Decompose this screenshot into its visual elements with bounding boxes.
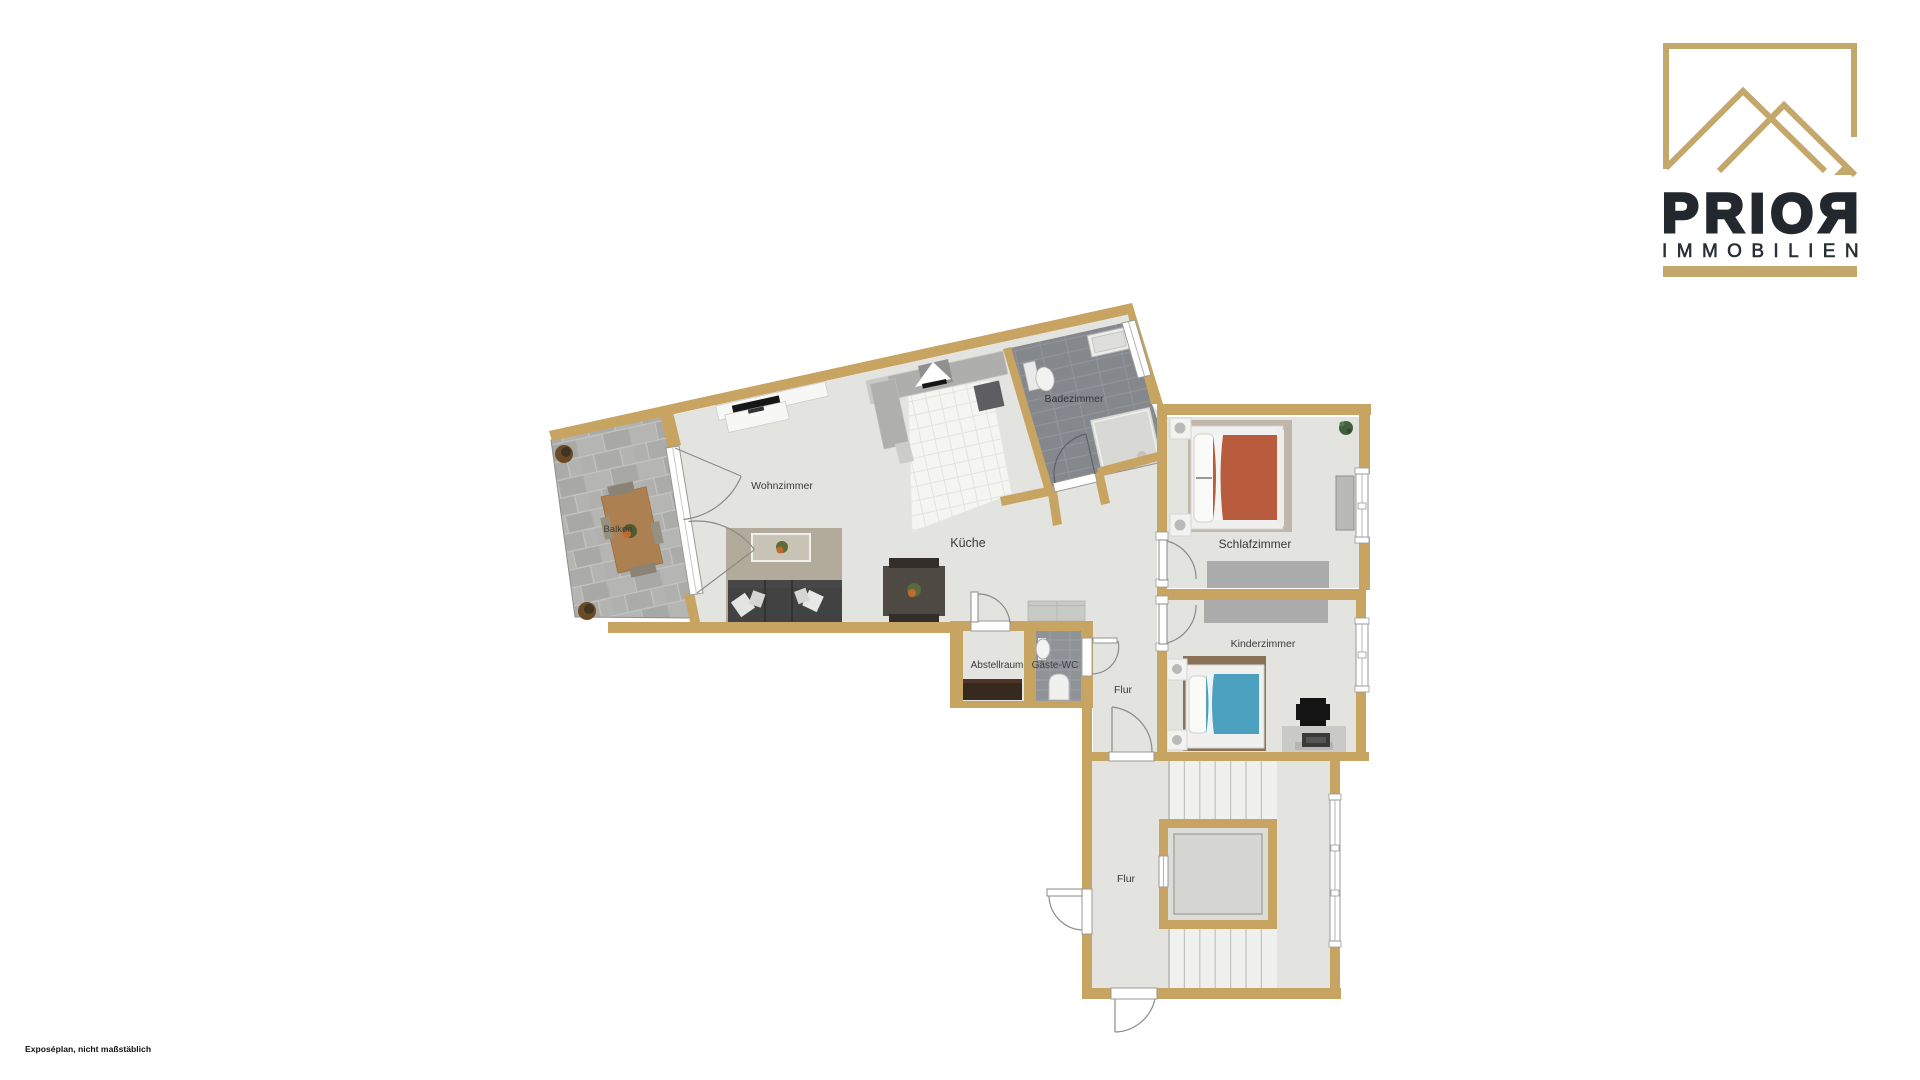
svg-text:Badezimmer: Badezimmer	[1045, 393, 1104, 405]
svg-text:Gäste-WC: Gäste-WC	[1032, 660, 1079, 671]
svg-text:Schlafzimmer: Schlafzimmer	[1219, 537, 1292, 551]
svg-text:IMMOBILIEN: IMMOBILIEN	[1662, 241, 1868, 262]
svg-text:Wohnzimmer: Wohnzimmer	[751, 480, 813, 492]
svg-text:Flur: Flur	[1117, 873, 1136, 885]
svg-text:Exposéplan, nicht maßstäblich: Exposéplan, nicht maßstäblich	[25, 1044, 151, 1054]
svg-text:Abstellraum: Abstellraum	[971, 660, 1024, 671]
svg-text:PRIOЯ: PRIOЯ	[1662, 182, 1864, 244]
svg-text:Küche: Küche	[950, 536, 985, 550]
svg-text:Flur: Flur	[1114, 684, 1133, 696]
svg-text:Balkon: Balkon	[603, 524, 632, 535]
svg-text:Kinderzimmer: Kinderzimmer	[1231, 638, 1296, 650]
